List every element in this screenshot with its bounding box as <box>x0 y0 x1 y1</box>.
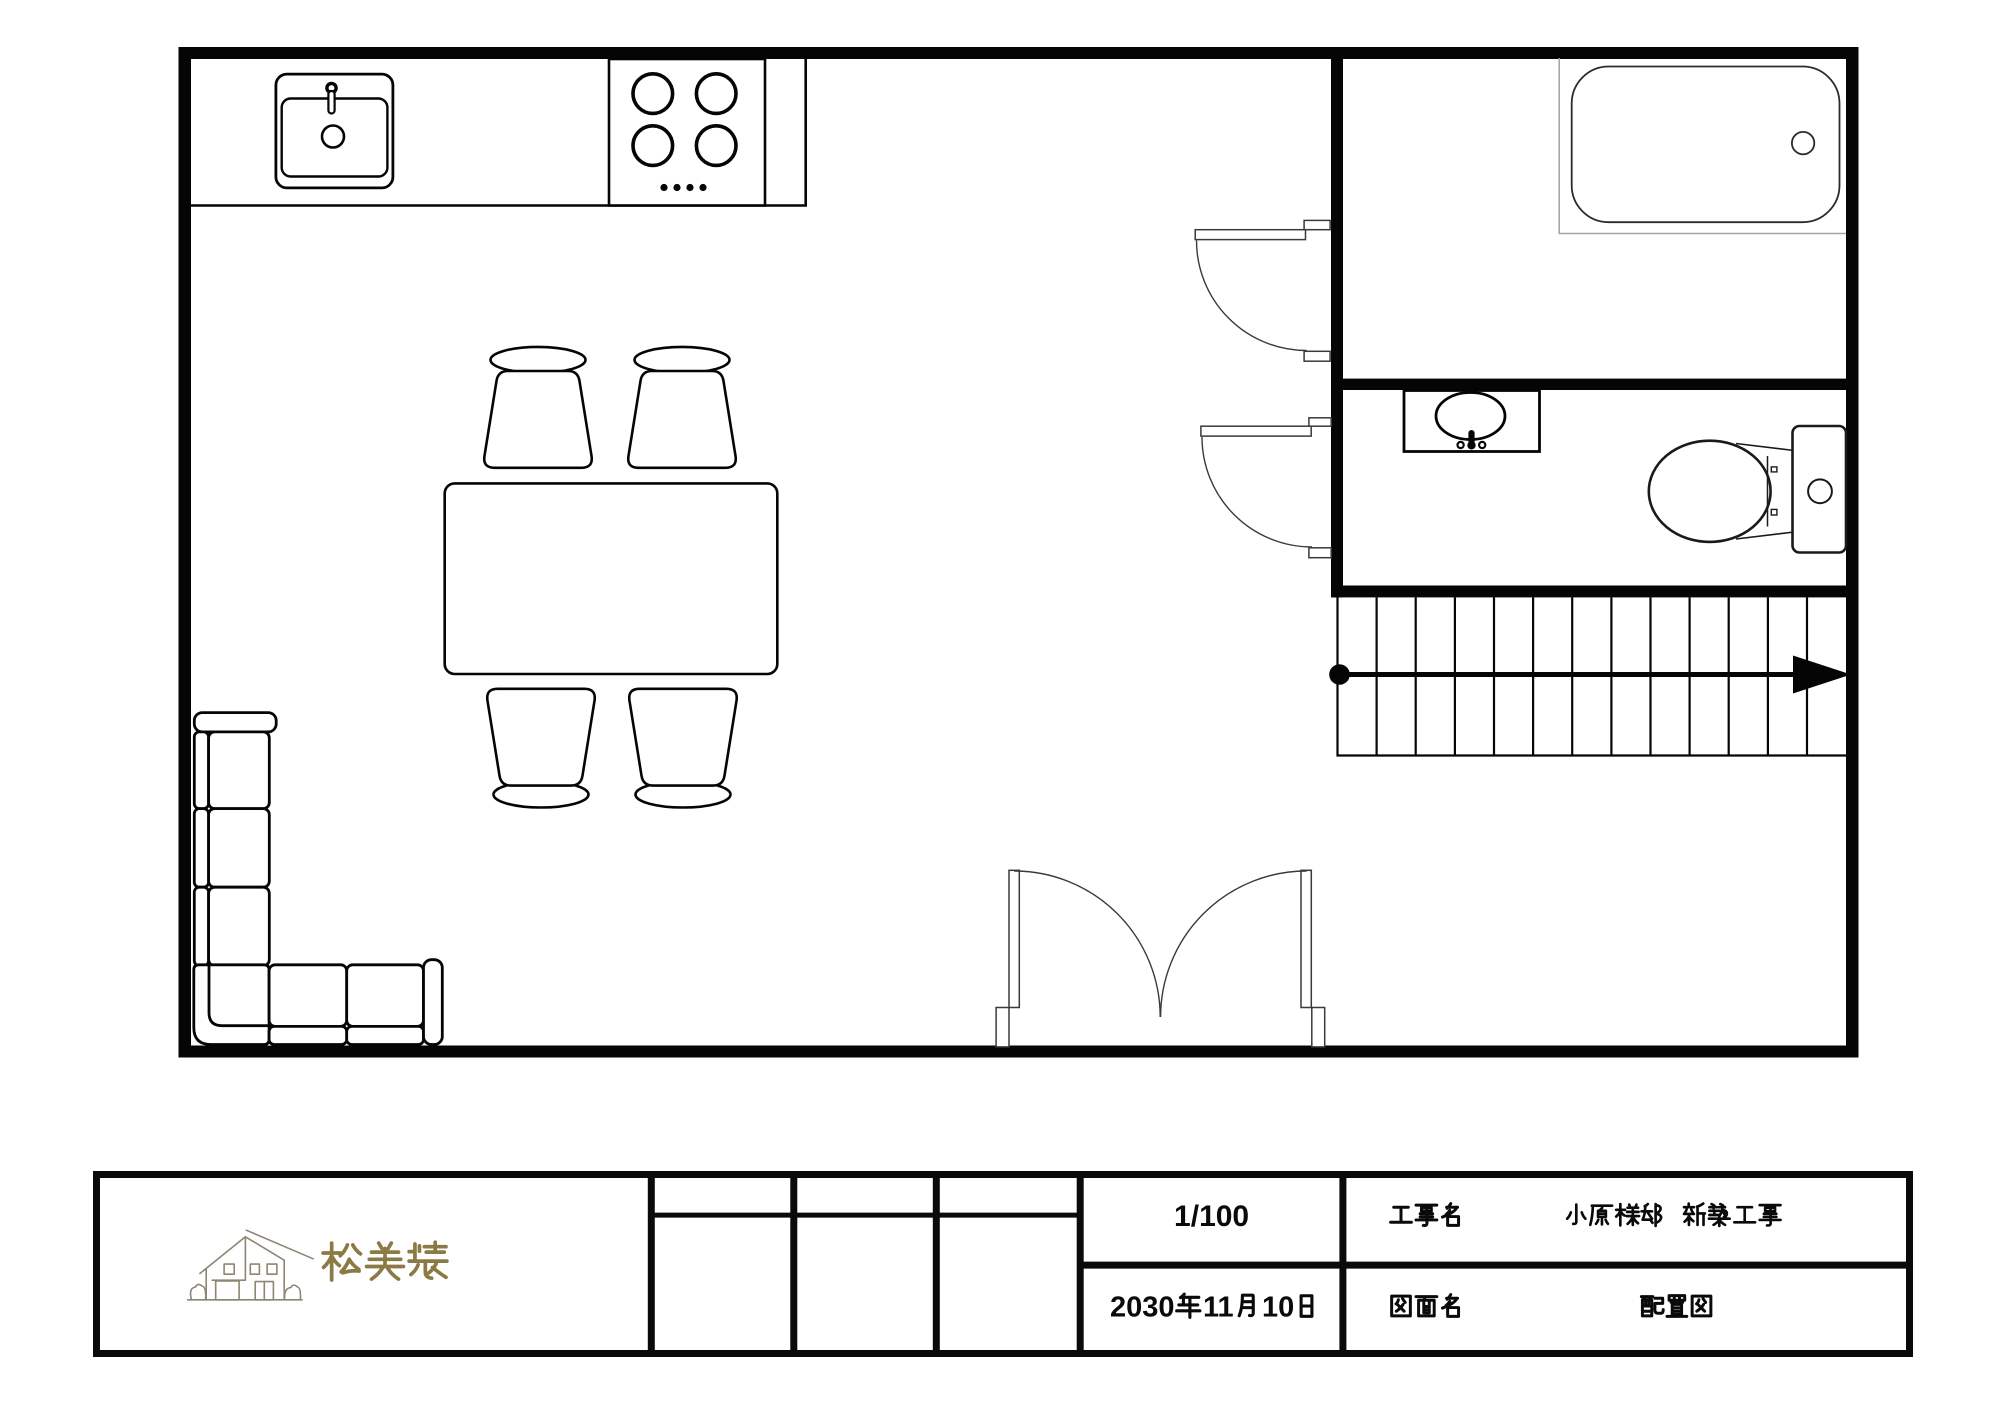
svg-text:11: 11 <box>1203 1292 1234 1324</box>
svg-text:2030: 2030 <box>1110 1292 1175 1324</box>
svg-text:10: 10 <box>1262 1292 1294 1324</box>
svg-text:1/100: 1/100 <box>1174 1200 1249 1233</box>
